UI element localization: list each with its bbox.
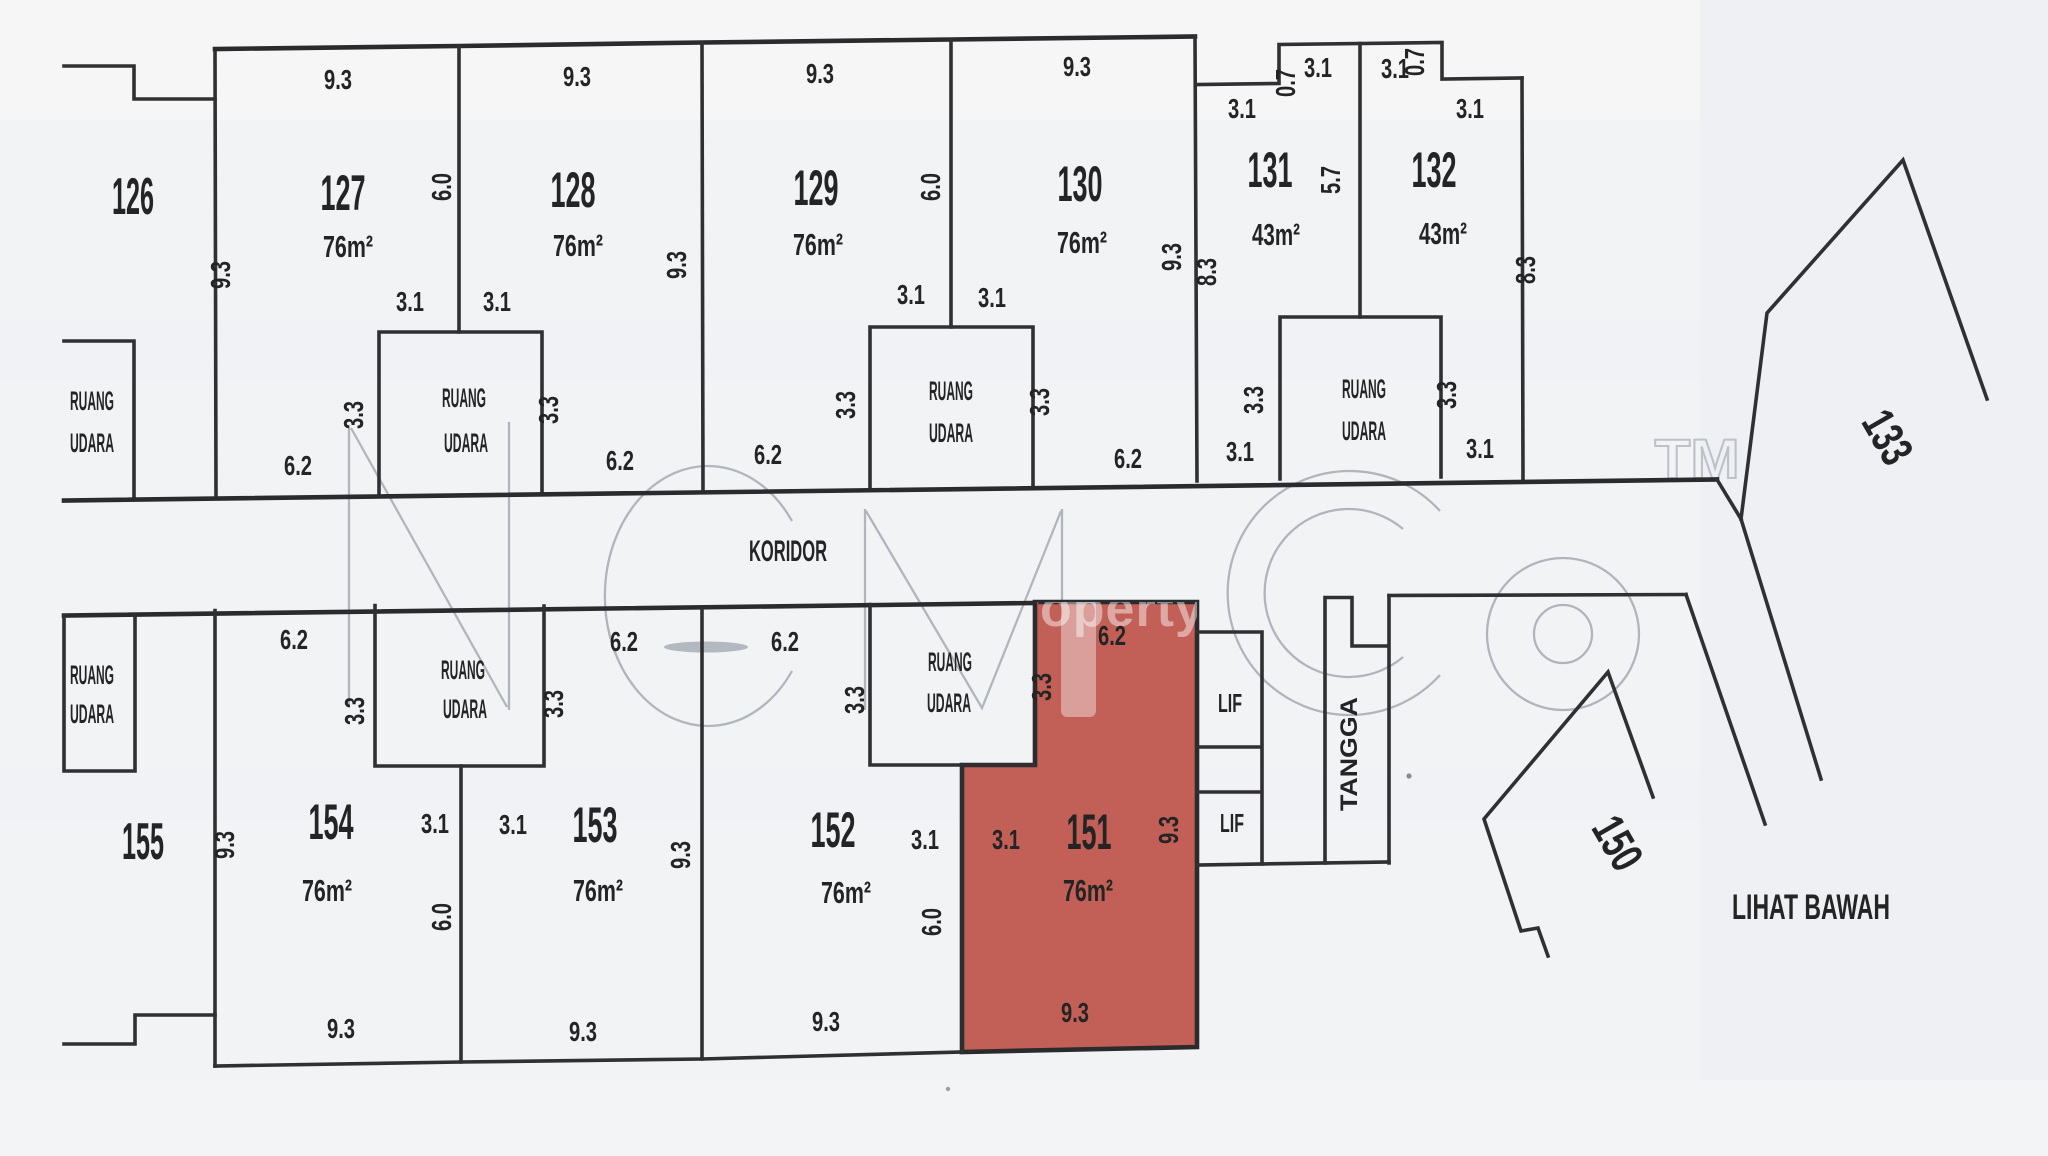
svg-text:9.3: 9.3 — [1063, 51, 1091, 82]
svg-text:3.1: 3.1 — [1456, 93, 1484, 124]
svg-text:132: 132 — [1412, 142, 1457, 198]
svg-text:151: 151 — [1067, 804, 1112, 860]
svg-text:43m²: 43m² — [1419, 216, 1467, 251]
svg-text:9.3: 9.3 — [209, 831, 240, 859]
svg-text:6.0: 6.0 — [916, 908, 947, 936]
svg-text:3.1: 3.1 — [1226, 436, 1254, 467]
svg-text:TANGGA: TANGGA — [1336, 697, 1363, 811]
svg-text:3.3: 3.3 — [533, 396, 564, 424]
svg-text:155: 155 — [122, 813, 164, 871]
svg-text:3.1: 3.1 — [897, 279, 925, 310]
svg-text:RUANG: RUANG — [442, 383, 486, 413]
svg-text:5.7: 5.7 — [1315, 166, 1346, 194]
svg-text:LIHAT BAWAH: LIHAT BAWAH — [1732, 888, 1890, 927]
svg-text:6.2: 6.2 — [284, 450, 312, 481]
svg-text:128: 128 — [551, 162, 596, 218]
svg-text:6.2: 6.2 — [754, 439, 782, 470]
svg-text:6.2: 6.2 — [610, 626, 638, 657]
svg-text:126: 126 — [112, 168, 154, 226]
svg-text:LIF: LIF — [1220, 808, 1244, 838]
svg-text:6.2: 6.2 — [771, 626, 799, 657]
svg-text:RUANG: RUANG — [929, 376, 973, 406]
svg-text:152: 152 — [811, 802, 856, 858]
svg-text:9.3: 9.3 — [665, 841, 696, 869]
svg-text:UDARA: UDARA — [927, 688, 971, 718]
svg-text:3.1: 3.1 — [978, 282, 1006, 313]
svg-text:76m²: 76m² — [323, 229, 373, 264]
svg-text:9.3: 9.3 — [812, 1006, 840, 1037]
svg-text:76m²: 76m² — [821, 875, 871, 910]
svg-text:3.1: 3.1 — [992, 824, 1020, 855]
svg-text:3.1: 3.1 — [1228, 93, 1256, 124]
svg-text:3.3: 3.3 — [839, 686, 870, 714]
svg-text:3.3: 3.3 — [1024, 388, 1055, 416]
svg-text:6.2: 6.2 — [1098, 620, 1126, 651]
svg-text:3.3: 3.3 — [1238, 386, 1269, 414]
svg-text:0.7: 0.7 — [1270, 69, 1301, 97]
svg-text:RUANG: RUANG — [441, 655, 485, 685]
svg-text:3.3: 3.3 — [830, 391, 861, 419]
svg-text:9.3: 9.3 — [205, 261, 236, 289]
svg-text:153: 153 — [573, 797, 618, 853]
svg-text:9.3: 9.3 — [806, 58, 834, 89]
svg-text:0.7: 0.7 — [1399, 48, 1430, 76]
svg-text:RUANG: RUANG — [70, 386, 114, 416]
svg-text:9.3: 9.3 — [1153, 816, 1184, 844]
svg-text:3.3: 3.3 — [538, 690, 569, 718]
svg-text:76m²: 76m² — [302, 873, 352, 908]
svg-text:76m²: 76m² — [553, 228, 603, 263]
svg-text:9.3: 9.3 — [569, 1016, 597, 1047]
svg-text:3.1: 3.1 — [499, 809, 527, 840]
svg-text:3.1: 3.1 — [1466, 433, 1494, 464]
svg-text:3.1: 3.1 — [1304, 52, 1332, 83]
svg-text:3.3: 3.3 — [1026, 673, 1057, 701]
svg-text:6.2: 6.2 — [280, 624, 308, 655]
svg-text:3.1: 3.1 — [911, 824, 939, 855]
svg-text:8.3: 8.3 — [1510, 256, 1541, 284]
svg-text:UDARA: UDARA — [444, 428, 488, 458]
svg-text:8.3: 8.3 — [1191, 258, 1222, 286]
svg-text:KORIDOR: KORIDOR — [749, 535, 827, 568]
svg-text:76m²: 76m² — [1057, 225, 1107, 260]
svg-text:6.0: 6.0 — [426, 173, 457, 201]
svg-text:3.3: 3.3 — [338, 401, 369, 429]
svg-text:UDARA: UDARA — [70, 428, 114, 458]
svg-text:UDARA: UDARA — [929, 418, 973, 448]
svg-text:3.1: 3.1 — [421, 808, 449, 839]
svg-text:3.1: 3.1 — [483, 286, 511, 317]
svg-text:6.0: 6.0 — [426, 903, 457, 931]
svg-text:RUANG: RUANG — [70, 660, 114, 690]
svg-text:9.3: 9.3 — [661, 251, 692, 279]
svg-text:3.3: 3.3 — [1431, 381, 1462, 409]
svg-text:RUANG: RUANG — [928, 647, 972, 677]
svg-text:3.3: 3.3 — [339, 697, 370, 725]
svg-text:LIF: LIF — [1218, 688, 1242, 718]
svg-text:129: 129 — [794, 160, 839, 216]
svg-text:76m²: 76m² — [1063, 873, 1113, 908]
svg-text:UDARA: UDARA — [1342, 416, 1386, 446]
svg-text:76m²: 76m² — [573, 873, 623, 908]
svg-text:3.1: 3.1 — [396, 286, 424, 317]
svg-text:RUANG: RUANG — [1342, 374, 1386, 404]
svg-text:9.3: 9.3 — [1061, 997, 1089, 1028]
svg-text:6.0: 6.0 — [915, 173, 946, 201]
svg-text:154: 154 — [309, 794, 354, 850]
svg-text:9.3: 9.3 — [324, 64, 352, 95]
svg-text:9.3: 9.3 — [327, 1013, 355, 1044]
svg-text:9.3: 9.3 — [1156, 243, 1187, 271]
svg-text:76m²: 76m² — [793, 227, 843, 262]
svg-text:UDARA: UDARA — [443, 694, 487, 724]
svg-text:6.2: 6.2 — [606, 445, 634, 476]
svg-text:9.3: 9.3 — [563, 61, 591, 92]
svg-text:UDARA: UDARA — [70, 699, 114, 729]
svg-text:131: 131 — [1248, 142, 1293, 198]
svg-text:127: 127 — [321, 165, 366, 221]
svg-text:43m²: 43m² — [1252, 217, 1300, 252]
svg-text:130: 130 — [1058, 156, 1103, 212]
svg-text:6.2: 6.2 — [1114, 443, 1142, 474]
